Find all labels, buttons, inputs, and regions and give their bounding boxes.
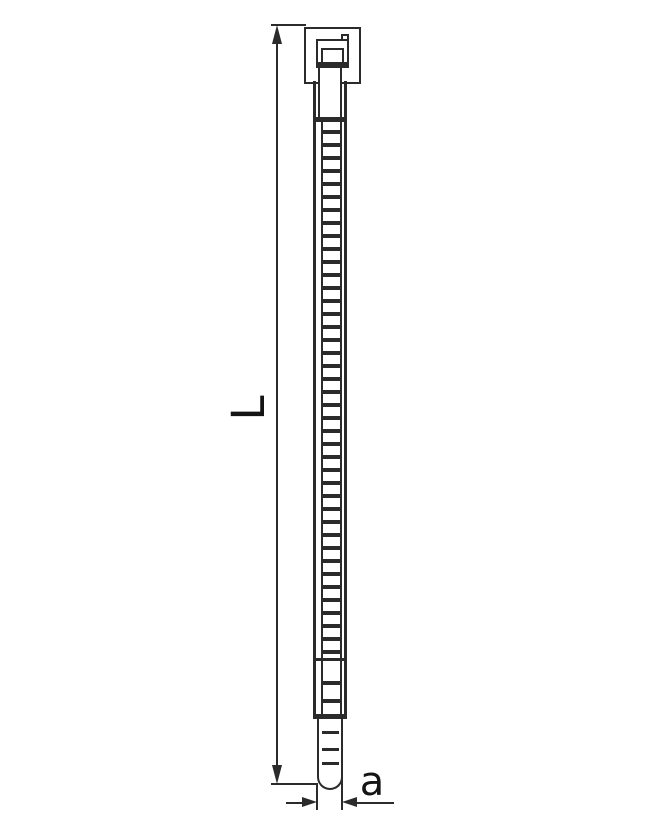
tip-line-1 bbox=[322, 731, 339, 734]
tip-line-3 bbox=[322, 762, 339, 765]
dim-width-line-left bbox=[286, 802, 303, 804]
neck-edge-left bbox=[318, 66, 321, 119]
dim-length-label: L bbox=[220, 380, 276, 436]
strap-teeth-band bbox=[321, 117, 342, 655]
tip-line-2 bbox=[322, 748, 339, 751]
strap-tip-outline bbox=[317, 718, 344, 790]
cable-tie-technical-drawing: L a bbox=[0, 0, 646, 832]
tie-head-pawl-bar bbox=[316, 62, 349, 68]
strap-section-divider bbox=[313, 658, 347, 661]
dim-length-arrowhead-bottom bbox=[272, 765, 282, 784]
neck-edge-right bbox=[340, 66, 343, 119]
dim-width-arrowhead-left bbox=[302, 797, 317, 807]
dim-length-arrowhead-top bbox=[272, 25, 282, 44]
strap-edge-left bbox=[313, 81, 316, 716]
dim-width-label: a bbox=[350, 760, 394, 804]
tie-head-pawl-notch bbox=[341, 34, 350, 40]
strap-edge-right bbox=[344, 81, 347, 716]
strap-lower-rung-1 bbox=[321, 681, 342, 685]
strap-lower-rung-2 bbox=[321, 699, 342, 703]
head-bottom-gap bbox=[319, 81, 342, 85]
dim-length-line bbox=[276, 40, 278, 768]
